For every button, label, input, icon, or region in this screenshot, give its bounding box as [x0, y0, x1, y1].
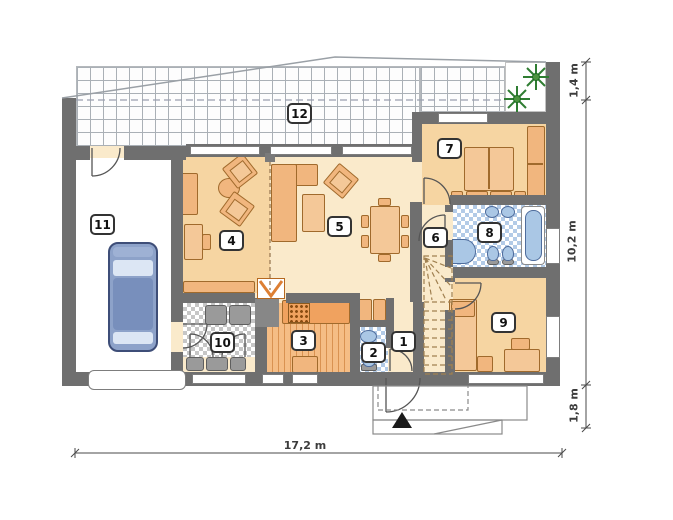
stove-icon — [288, 303, 310, 323]
car-roof — [113, 278, 153, 330]
toilet — [487, 246, 499, 261]
room-label-2: 2 — [361, 342, 386, 363]
desk — [184, 224, 203, 260]
window — [292, 374, 318, 384]
wall-left — [62, 98, 76, 386]
wardrobe — [527, 126, 545, 202]
bathroom-sink — [485, 206, 499, 218]
wall-room9-left — [445, 278, 455, 282]
fireplace — [257, 278, 285, 299]
corner-sofa-side — [271, 164, 297, 242]
dryer-icon — [229, 305, 251, 325]
wall-living-right — [412, 112, 422, 162]
room-label-6: 6 — [423, 227, 448, 248]
closet-wardrobe — [358, 299, 372, 321]
window — [468, 374, 544, 384]
dining-chair — [361, 235, 369, 248]
desk-chair — [202, 234, 211, 250]
dining-chair — [401, 235, 409, 248]
wall-living-right — [410, 202, 422, 302]
dimension-right-middle: 10,2 m — [566, 212, 579, 272]
terrace-floor-right — [420, 66, 505, 112]
window — [262, 374, 284, 384]
dimension-right-top: 1,4 m — [568, 51, 581, 111]
desk-chair — [511, 338, 530, 350]
washer-icon — [205, 305, 227, 325]
desk — [504, 349, 540, 372]
garage-door — [88, 370, 186, 390]
room-label-4: 4 — [219, 230, 244, 251]
entrance-triangle-icon — [392, 412, 412, 428]
dining-chair — [361, 215, 369, 228]
window — [192, 374, 246, 384]
cabinet — [183, 281, 255, 293]
car-rear-window — [113, 332, 153, 344]
room-label-9: 9 — [491, 312, 516, 333]
dimension-right-bottom: 1,8 m — [568, 376, 581, 436]
dining-chair — [401, 215, 409, 228]
wall-kitchen-top — [286, 293, 360, 303]
car — [108, 242, 158, 352]
room-label-3: 3 — [291, 330, 316, 351]
wall-bath-room9 — [453, 267, 546, 278]
floor-plan: 1 2 3 4 5 6 7 8 9 10 11 12 17,2 m 1,4 m … — [0, 0, 673, 520]
window — [438, 113, 488, 123]
wall-utility-top — [183, 293, 255, 303]
chimney-block — [255, 299, 279, 327]
wall-garage-front — [62, 146, 90, 160]
room-label-7: 7 — [437, 138, 462, 159]
wall-garage-side — [171, 148, 183, 322]
window — [546, 228, 560, 264]
terrace-floor — [76, 66, 420, 147]
wall-wc-closet — [357, 320, 388, 327]
window — [546, 316, 560, 358]
car-windshield — [113, 260, 153, 276]
room-label-1: 1 — [391, 331, 416, 352]
car-hood — [113, 247, 153, 257]
terrace-glass-door — [190, 146, 260, 155]
kitchen-table — [292, 356, 318, 373]
bathtub — [525, 210, 542, 261]
armchair-seat — [229, 160, 252, 183]
terrace-glass-door — [342, 146, 412, 155]
wardrobe-shelf — [528, 163, 543, 165]
bed-divider — [488, 148, 490, 189]
armchair-seat — [329, 170, 352, 193]
corner-basin — [452, 239, 476, 264]
dining-chair — [378, 198, 391, 206]
wall-kitchen-right — [350, 293, 360, 374]
dimension-width: 17,2 m — [270, 439, 340, 452]
coffee-table — [302, 194, 325, 232]
bench-seat — [181, 173, 198, 215]
room-label-12: 12 — [287, 103, 312, 124]
dining-table — [370, 206, 400, 254]
terrace-glass-door — [270, 146, 332, 155]
bidet — [502, 246, 514, 261]
bathroom-sink — [501, 206, 515, 218]
terrace-side-nook — [505, 62, 546, 112]
closet-wardrobe — [373, 299, 386, 321]
dining-chair — [378, 254, 391, 262]
porch — [373, 386, 527, 434]
armchair-seat — [225, 199, 248, 222]
wall-room7-bottom — [450, 195, 546, 205]
wall-room9-left — [445, 310, 455, 374]
wall-bath-left — [445, 205, 453, 212]
utility-unit — [206, 357, 228, 371]
room-label-8: 8 — [477, 222, 502, 243]
utility-unit — [230, 357, 246, 371]
room-label-5: 5 — [327, 216, 352, 237]
room-label-11: 11 — [90, 214, 115, 235]
nightstand — [477, 356, 493, 372]
room-label-10: 10 — [210, 332, 235, 353]
double-bed — [464, 147, 514, 191]
utility-unit — [186, 357, 204, 371]
